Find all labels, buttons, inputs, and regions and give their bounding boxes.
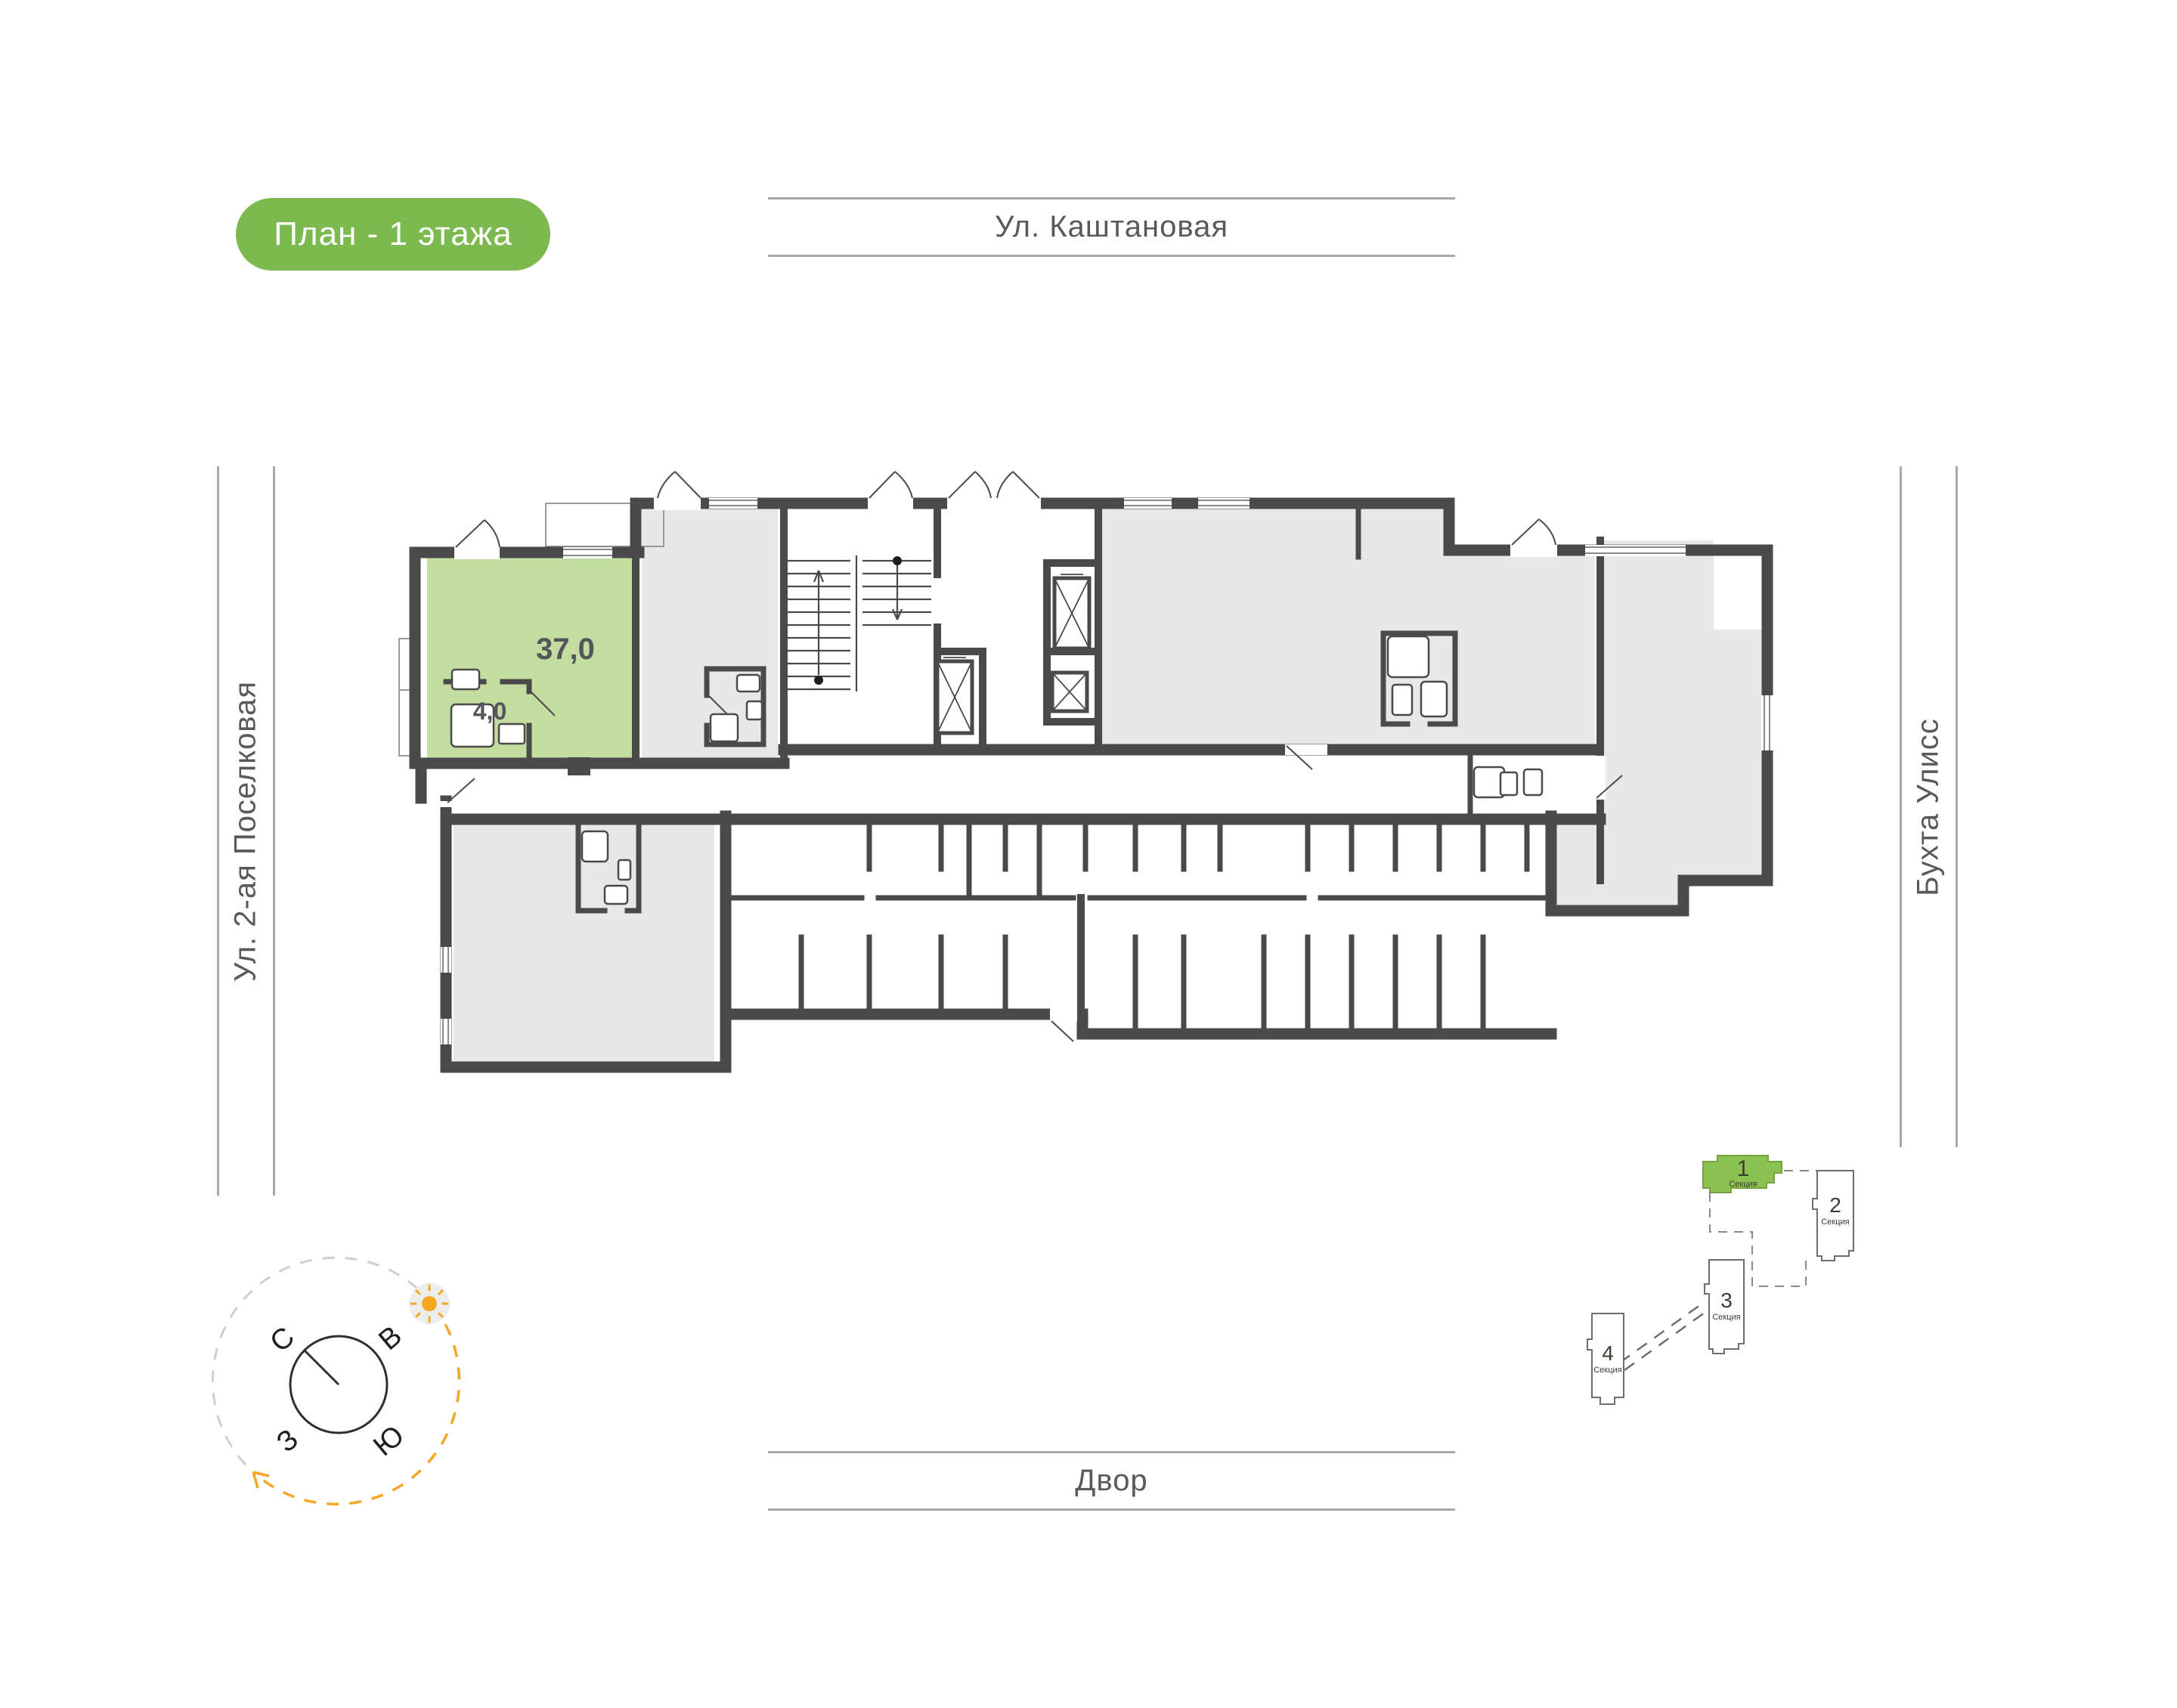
street-line-right-1 xyxy=(1900,466,1902,1147)
compass-west: З xyxy=(271,1423,305,1459)
street-label-right: Бухта Улисс xyxy=(1912,718,1946,896)
apartment-area-label: 37,0 xyxy=(536,633,595,666)
floor-badge[interactable]: План - 1 этажа xyxy=(236,198,550,271)
minimap-section-3[interactable]: 3 Секция xyxy=(1705,1260,1744,1354)
wall-pier xyxy=(568,757,590,775)
stairs-marker xyxy=(814,676,823,685)
minimap-section-number: 3 xyxy=(1720,1289,1733,1312)
minimap-link-3-4 xyxy=(1620,1303,1708,1370)
stairs xyxy=(788,555,931,692)
minimap-section-4[interactable]: 4 Секция xyxy=(1587,1313,1624,1404)
minimap-section-label: Секция xyxy=(1821,1218,1849,1227)
stairs-marker xyxy=(893,556,902,565)
minimap-section-number: 2 xyxy=(1829,1193,1841,1217)
street-label-bottom: Двор xyxy=(768,1464,1455,1498)
minimap-section-label: Секция xyxy=(1712,1313,1740,1322)
compass-east: В xyxy=(373,1320,407,1357)
street-line-bottom-2 xyxy=(768,1508,1455,1511)
street-line-left-1 xyxy=(217,466,219,1196)
compass: С В З Ю xyxy=(204,1247,491,1534)
minimap-section-label: Секция xyxy=(1593,1366,1621,1375)
minimap-section-number: 1 xyxy=(1737,1156,1750,1181)
minimap-section-label: Секция xyxy=(1729,1180,1757,1189)
compass-north: С xyxy=(265,1321,301,1359)
minimap-section-2[interactable]: 2 Секция xyxy=(1813,1171,1853,1261)
street-line-top-1 xyxy=(768,197,1455,200)
room-fill xyxy=(1102,505,1595,750)
street-line-right-2 xyxy=(1956,466,1958,1147)
street-label-top: Ул. Каштановая xyxy=(768,210,1455,244)
minimap-section-1[interactable]: 1 Секция xyxy=(1703,1156,1782,1193)
bathroom-area-label: 4,0 xyxy=(473,698,506,725)
street-line-bottom-1 xyxy=(768,1451,1455,1453)
street-label-left: Ул. 2-ая Поселковая xyxy=(229,681,263,982)
page: План - 1 этажа Ул. Каштановая Двор Ул. 2… xyxy=(0,0,2177,1708)
sections-minimap: 1 Секция 2 Секция 3 Секция 4 Секция xyxy=(1557,1130,1875,1432)
floor-plan: 37,0 4,0 xyxy=(393,469,1784,1081)
street-line-top-2 xyxy=(768,255,1455,257)
compass-needle xyxy=(305,1351,339,1385)
minimap-section-number: 4 xyxy=(1602,1341,1614,1365)
compass-south: Ю xyxy=(367,1419,410,1462)
sun-icon xyxy=(409,1283,450,1324)
street-line-left-2 xyxy=(273,466,275,1196)
